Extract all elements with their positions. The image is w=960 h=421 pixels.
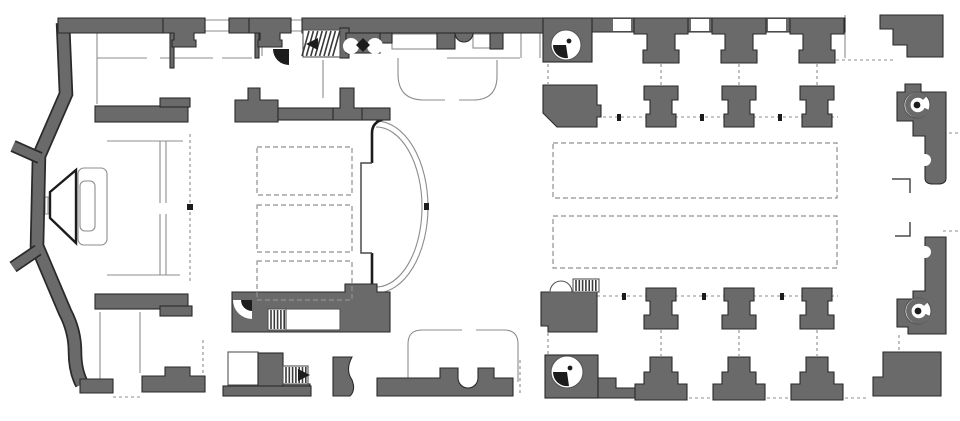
stair-jamb-lines xyxy=(521,33,540,58)
arc-apex-tick xyxy=(424,203,429,210)
crossing-pier-south xyxy=(541,292,597,332)
nw-band xyxy=(95,106,188,122)
west-wall-pier xyxy=(163,18,205,47)
choir-stalls xyxy=(257,147,352,300)
apse-foot xyxy=(80,379,113,393)
wall-gap xyxy=(768,19,786,31)
axis-tick xyxy=(780,293,784,300)
wall-niches xyxy=(343,38,931,258)
choir-north-lpier xyxy=(235,88,278,122)
north-wall-recess-b xyxy=(473,34,490,48)
nave-south-wall-pier xyxy=(791,357,843,400)
wall-gap xyxy=(691,19,709,31)
axis-tick xyxy=(617,114,621,121)
north-chapel-outline xyxy=(398,58,520,100)
axis-tick xyxy=(702,293,706,300)
chancel-screen xyxy=(361,119,384,296)
nave-north-wall-pier xyxy=(712,18,766,63)
nave-south-free-pier xyxy=(722,288,756,329)
nw-partition-a xyxy=(170,33,174,68)
axis-ticks xyxy=(617,114,784,300)
nave-north-free-pier xyxy=(722,86,756,127)
floor-plan-canvas xyxy=(0,0,960,421)
floor-plan-page xyxy=(0,0,960,421)
passage-stair xyxy=(268,309,286,330)
north-door-fan xyxy=(273,49,289,65)
east-notch-north xyxy=(919,154,931,166)
choir-stall xyxy=(257,147,352,195)
altar-trapezoid xyxy=(50,170,76,243)
choir-north-tpier xyxy=(333,88,362,120)
screen-center-jog xyxy=(361,163,372,253)
nave-south-free-pier xyxy=(644,288,678,329)
pew-blocks xyxy=(553,143,837,268)
nave-south-wall-pier xyxy=(635,357,687,400)
recess-step-a xyxy=(380,33,392,43)
spiral-newel xyxy=(567,39,572,44)
south-wall-vase-pier xyxy=(333,357,354,396)
east-block-south xyxy=(873,352,941,396)
sw-band-bump xyxy=(160,306,192,316)
south-wall-west-pier xyxy=(142,367,205,392)
nave-north-wall-pier xyxy=(790,18,844,63)
nave-north-free-pier xyxy=(644,86,678,127)
wall-gap xyxy=(613,19,631,31)
recess-pier-b xyxy=(490,33,503,49)
reveal-left xyxy=(343,38,359,54)
spiral-newel xyxy=(568,366,573,371)
spiral-stair xyxy=(904,92,930,118)
sanctuary-platform-lines xyxy=(107,141,183,275)
nave-piers xyxy=(163,18,844,400)
screen-north-half xyxy=(372,119,384,163)
nave-south-free-pier xyxy=(800,288,834,329)
choir-stall xyxy=(257,205,352,252)
entrance-door-reveals xyxy=(892,179,910,236)
east-block-north xyxy=(880,15,943,57)
spiral-stair xyxy=(551,30,581,60)
axis-tick xyxy=(622,293,626,300)
nave-north-free-pier xyxy=(800,86,834,127)
spiral-stairs xyxy=(551,30,931,388)
altar-dais-outline xyxy=(78,168,107,245)
northwest-room-lines xyxy=(97,33,323,104)
chancel-arc-outer xyxy=(376,121,428,293)
east-notch-south xyxy=(919,246,931,258)
south-chapel-outline xyxy=(408,330,518,382)
spiral-stair xyxy=(905,298,931,324)
sw-sill xyxy=(223,386,311,396)
spiral-newel xyxy=(914,102,921,109)
southwest-room xyxy=(228,352,258,385)
recess-apse-niche xyxy=(455,33,473,42)
nw-band-bump xyxy=(160,98,190,107)
reveal-right xyxy=(367,38,383,54)
altar-inner-outline xyxy=(80,181,95,231)
construction-lines xyxy=(42,15,960,398)
pew-block xyxy=(553,216,837,268)
pulpit-stair xyxy=(573,279,599,292)
recess-pier-a xyxy=(437,33,455,49)
spiral-stair xyxy=(551,356,583,388)
north-wall-recess-a xyxy=(392,34,437,49)
pulpit-bowl xyxy=(550,281,572,292)
crossing-pier-north xyxy=(543,85,601,127)
nave-south-wall-pier xyxy=(713,357,765,400)
axis-tick xyxy=(778,114,782,121)
spiral-newel xyxy=(915,308,922,315)
nave-north-wall-pier xyxy=(634,18,688,63)
axis-tick xyxy=(700,114,704,121)
south-wall-center xyxy=(377,368,513,396)
axis-square-tick xyxy=(187,204,193,210)
pew-block xyxy=(553,143,837,198)
southwest-room-lines xyxy=(100,312,140,386)
